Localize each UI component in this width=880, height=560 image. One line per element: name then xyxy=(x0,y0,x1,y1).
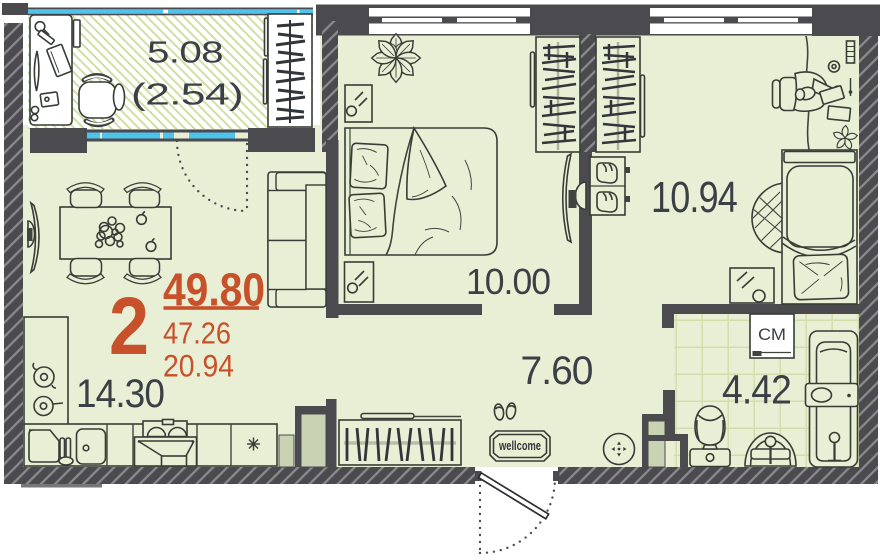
svg-text:2: 2 xyxy=(109,281,149,372)
svg-text:СМ: СМ xyxy=(758,326,786,344)
svg-text:5.08: 5.08 xyxy=(147,35,223,70)
svg-text:20.94: 20.94 xyxy=(163,348,234,384)
svg-text:wellcome: wellcome xyxy=(498,439,541,453)
svg-text:14.30: 14.30 xyxy=(76,372,164,416)
svg-text:47.26: 47.26 xyxy=(163,316,231,351)
svg-text:10.94: 10.94 xyxy=(651,173,737,222)
svg-text:4.42: 4.42 xyxy=(722,367,791,413)
svg-text:10.00: 10.00 xyxy=(466,261,550,302)
svg-text:7.60: 7.60 xyxy=(521,349,593,393)
svg-text:(2.54): (2.54) xyxy=(131,77,243,112)
